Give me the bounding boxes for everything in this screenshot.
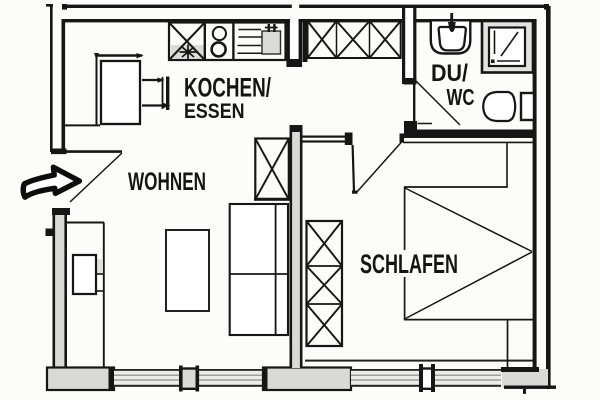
svg-text:WOHNEN: WOHNEN <box>128 168 206 196</box>
svg-text:KOCHEN/: KOCHEN/ <box>184 73 271 103</box>
svg-text:DU/: DU/ <box>431 60 468 87</box>
svg-text:SCHLAFEN: SCHLAFEN <box>360 249 458 279</box>
svg-text:WC: WC <box>447 84 475 110</box>
svg-text:ESSEN: ESSEN <box>184 100 245 123</box>
